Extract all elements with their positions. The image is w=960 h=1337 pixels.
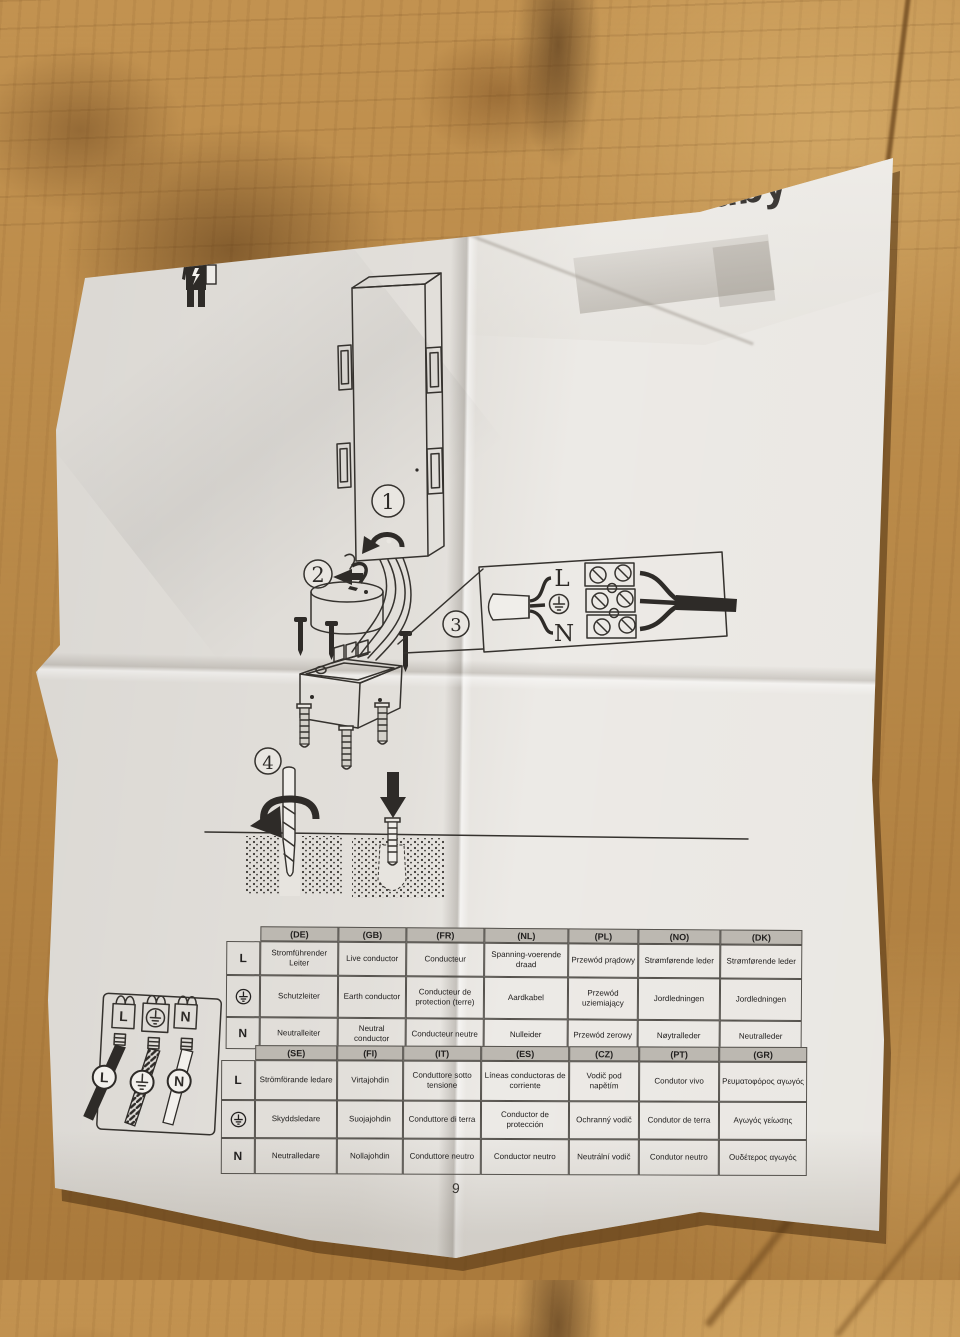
table-cell: Strømførende leder	[720, 944, 802, 979]
drill-bit-icon	[283, 767, 295, 876]
table-cell: Nollajohdin	[337, 1138, 403, 1174]
table-cell: Conducteur de protection (terre)	[406, 976, 484, 1019]
step-2-number: 2	[311, 563, 324, 587]
row-symbol-earth	[226, 975, 260, 1017]
assembly-diagram: 1 2	[170, 225, 770, 925]
table-corner-blank	[226, 926, 260, 941]
page-number: 9	[451, 1180, 460, 1197]
terminal-box-neutral: N	[174, 996, 198, 1029]
terminal-screw	[590, 565, 635, 635]
table-cell: Strömförande ledare	[255, 1060, 337, 1100]
column-header: (SE)	[255, 1045, 337, 1060]
table-cell: Jordledningen	[720, 978, 802, 1021]
step-1-number: 1	[381, 490, 394, 514]
down-arrow-icon	[380, 772, 406, 818]
table-cell: Suojajohdin	[337, 1100, 403, 1138]
wire-legend-diagram: L N L	[84, 981, 232, 1148]
table-cell: Αγωγός γείωσης	[719, 1102, 807, 1140]
conductor-table-1: (DE) (GB) (FR) (NL) (PL) (NO) (DK) L Str…	[226, 926, 803, 1053]
wiring-detail-callout: 3 L N	[398, 552, 737, 653]
table-cell: Earth conductor	[338, 976, 406, 1018]
column-header: (PL)	[568, 928, 638, 943]
row-symbol-live: L	[226, 941, 260, 975]
column-header: (ES)	[481, 1046, 569, 1061]
svg-text:L: L	[100, 1069, 110, 1085]
table-cell: Stromführender Leiter	[260, 941, 338, 976]
table-cell: Schutzleiter	[260, 975, 338, 1018]
terminal-box-live: L	[112, 996, 136, 1029]
earth-ground-symbol-icon	[550, 595, 569, 614]
table-cell: Spanning-voerende draad	[484, 943, 568, 978]
table-cell: Neutralledare	[255, 1138, 337, 1174]
earth-ground-symbol-icon	[146, 1008, 165, 1027]
wall-plugs	[297, 703, 389, 769]
step-3-number: 3	[450, 615, 461, 636]
table-cell: Conductor neutro	[481, 1139, 569, 1175]
column-header: (CZ)	[569, 1046, 639, 1061]
table-cell: Condutor de terra	[639, 1101, 719, 1139]
column-header: (DE)	[260, 926, 338, 942]
terminal-block	[585, 563, 636, 638]
table-cell: Condutor vivo	[639, 1061, 719, 1101]
table-cell: Conduttore neutro	[403, 1139, 481, 1175]
table-cell: Skyddsledare	[255, 1100, 337, 1138]
svg-text:N: N	[174, 1073, 185, 1090]
column-header: (NO)	[638, 929, 720, 945]
canopy-base: 2	[304, 554, 383, 634]
table-cell: Ουδέτερος αγωγός	[719, 1140, 807, 1176]
table-cell: Conduttore di terra	[403, 1101, 481, 1139]
table-cell: Líneas conductoras de corriente	[481, 1061, 569, 1101]
rotate-arrow-icon	[362, 534, 402, 554]
column-header: (NL)	[484, 928, 568, 944]
table-cell: Jordledningen	[638, 978, 720, 1021]
table-corner-blank	[221, 1045, 255, 1060]
table-cell: Aardkabel	[484, 977, 568, 1020]
neutral-label: N	[554, 621, 574, 647]
table-cell: Live conductor	[338, 942, 406, 976]
conductor-table-2: (SE) (FI) (IT) (ES) (CZ) (PT) (GR) L Str…	[221, 1045, 807, 1176]
ground-section	[205, 767, 748, 898]
row-symbol-neutral: N	[221, 1138, 255, 1174]
wire-label-live: L	[92, 1065, 116, 1089]
table-cell: Conductor de protección	[481, 1101, 569, 1139]
wire-label-earth	[130, 1070, 154, 1094]
step-4-number: 4	[262, 753, 273, 774]
table-cell: Ochranný vodič	[569, 1101, 639, 1139]
live-label: L	[119, 1008, 129, 1024]
column-header: (FR)	[406, 927, 484, 943]
column-header: (PT)	[639, 1046, 719, 1061]
table-cell: Condutor neutro	[639, 1139, 719, 1175]
table-cell: Virtajohdin	[337, 1060, 403, 1100]
row-symbol-earth	[221, 1100, 255, 1138]
column-header: (DK)	[720, 929, 802, 945]
column-header: (FI)	[337, 1045, 403, 1060]
table-cell: Conducteur	[406, 942, 484, 977]
column-header: (GR)	[719, 1047, 807, 1062]
wire-label-neutral: N	[167, 1069, 191, 1093]
table-cell: Przewód prądowy	[568, 943, 638, 977]
table-cell: Neutrální vodič	[569, 1139, 639, 1175]
live-label: L	[554, 566, 569, 592]
terminal-box-earth	[142, 995, 170, 1032]
table-cell: Ρευματοφόρος αγωγός	[719, 1062, 807, 1102]
table-cell: Przewód uziemiający	[568, 977, 638, 1019]
neutral-label: N	[180, 1008, 191, 1025]
row-symbol-live: L	[221, 1060, 255, 1100]
table-cell: Strømførende leder	[638, 944, 720, 979]
table-cell: Vodič pod napětím	[569, 1061, 639, 1101]
earth-ground-symbol-icon	[234, 988, 251, 1005]
lamp-post: 1	[337, 273, 444, 561]
column-header: (GB)	[338, 927, 406, 942]
column-header: (IT)	[403, 1046, 481, 1061]
photo-of-instruction-sheet: { "photo": { "brand_logo": "Lindby", "sh…	[0, 0, 960, 1280]
cable-end	[489, 594, 530, 620]
table-cell: Conduttore sotto tensione	[403, 1061, 481, 1101]
earth-ground-symbol-icon	[229, 1111, 246, 1128]
